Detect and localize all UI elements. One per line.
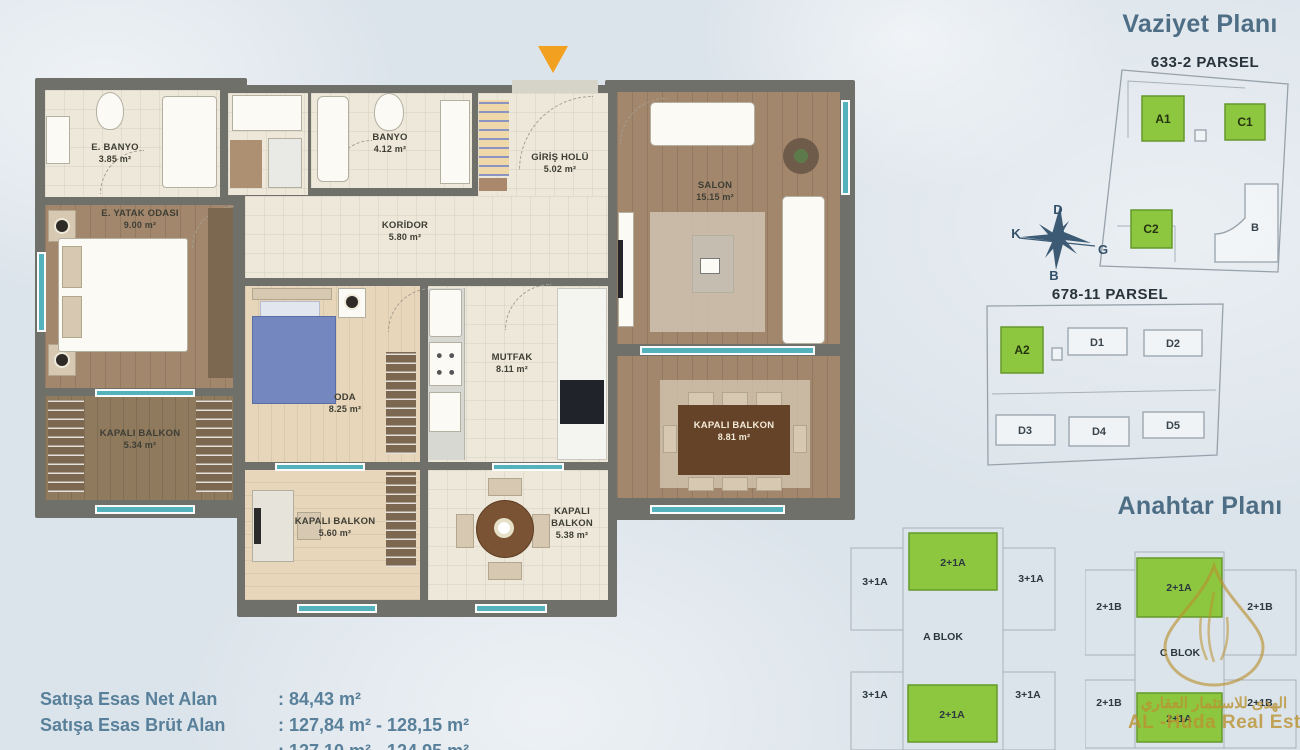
window-oda-balkon <box>275 463 365 471</box>
lamp-icon <box>56 220 68 232</box>
room-area: 3.85 m² <box>60 154 170 165</box>
parcel1-small-structure <box>1195 130 1206 141</box>
info-value: : 127,84 m² - 128,15 m² <box>278 715 469 736</box>
window-eyatak-balkon <box>95 389 195 397</box>
a-blok-wing <box>851 672 903 750</box>
room-label-balkon534: KAPALI BALKON 5.34 m² <box>75 428 205 451</box>
room-name: E. YATAK ODASI <box>101 208 178 219</box>
room-area: 5.60 m² <box>270 528 400 539</box>
oven-icon <box>560 380 604 424</box>
counter-icon <box>232 95 302 131</box>
room-name: SALON <box>698 180 732 191</box>
pillow-icon <box>62 246 82 288</box>
key-plan-a-blok: 2+1A 2+1A 3+1A 3+1A 3+1A 3+1A A BLOK <box>845 522 1060 750</box>
block-c1-label: C1 <box>1237 115 1253 129</box>
watermark-logo-icon <box>1139 562 1289 687</box>
room-area: 8.81 m² <box>680 432 788 443</box>
laptop-icon <box>700 258 720 274</box>
fridge-icon <box>429 289 462 337</box>
window-salon-balkon <box>640 346 815 355</box>
a-blok-unit-top-label: 2+1A <box>940 557 966 569</box>
room-label-banyo: BANYO 4.12 m² <box>335 132 445 155</box>
info-label: Satışa Esas Brüt Alan <box>40 715 278 736</box>
block-b-outline <box>1215 184 1278 262</box>
a-blok-label: A BLOK <box>923 631 963 643</box>
block-b-label: B <box>1251 222 1259 234</box>
room-name: KORİDOR <box>382 220 428 231</box>
chair-icon <box>488 562 522 580</box>
info-row: : 127,10 m² - 124,95 m² <box>40 738 469 750</box>
room-name: E. BANYO <box>91 142 139 153</box>
watermark-arabic-text: الهدى للاستثمار العقاري <box>1128 694 1300 712</box>
chair-icon <box>722 477 748 491</box>
a-blok-wing <box>1003 672 1055 750</box>
chair-icon <box>663 425 677 453</box>
plant-icon <box>783 138 819 174</box>
shower-icon <box>162 96 217 188</box>
parcel2-small-structure <box>1052 348 1062 360</box>
watermark-latin-text: AL -Huda Real Estate <box>1128 712 1300 734</box>
a-blok-corner-label: 3+1A <box>862 689 888 701</box>
chair-icon <box>793 425 807 453</box>
area-info: Satışa Esas Net Alan : 84,43 m² Satışa E… <box>40 686 469 750</box>
room-name: MUTFAK <box>492 352 533 363</box>
room-label-giris: GİRİŞ HOLÜ 5.02 m² <box>508 152 612 175</box>
info-value: : 127,10 m² - 124,95 m² <box>278 741 469 750</box>
site-plan-parcel2: A2 D1 D2 D3 D4 D5 <box>978 298 1230 470</box>
site-plan-title: Vaziyet Planı <box>1100 10 1300 39</box>
cabinet-icon <box>230 140 262 188</box>
window-balkon560-bottom <box>297 604 377 613</box>
compass-icon: D K G B <box>1003 198 1113 290</box>
room-area: 15.15 m² <box>660 192 770 203</box>
room-name: KAPALI BALKON <box>551 506 593 529</box>
c-blok-corner-label: 2+1B <box>1096 697 1122 709</box>
kitchen-sink-icon <box>429 392 461 432</box>
single-bed-icon <box>252 316 336 404</box>
shoe-cabinet-icon <box>479 178 507 191</box>
sofa-icon <box>650 102 755 146</box>
room-area: 4.12 m² <box>335 144 445 155</box>
room-label-salon: SALON 15.15 m² <box>660 180 770 203</box>
compass-n: D <box>1053 202 1062 217</box>
entrance-threshold <box>512 80 598 94</box>
window-balkon538-bottom <box>475 604 547 613</box>
toilet-icon <box>374 93 404 131</box>
c-blok-corner-label: 2+1B <box>1096 601 1122 613</box>
info-row: Satışa Esas Net Alan : 84,43 m² <box>40 686 469 712</box>
block-c2-label: C2 <box>1143 222 1159 236</box>
entrance-arrow-icon <box>538 46 568 73</box>
window-mutfak-balkon <box>492 463 564 471</box>
pillow-icon <box>62 296 82 338</box>
compass-w: K <box>1011 226 1021 241</box>
room-name: GİRİŞ HOLÜ <box>531 152 588 163</box>
room-area: 5.80 m² <box>350 232 460 243</box>
window-balkon534-bottom <box>95 505 195 514</box>
chair-icon <box>456 514 474 548</box>
info-row: Satışa Esas Brüt Alan : 127,84 m² - 128,… <box>40 712 469 738</box>
compass-s: B <box>1049 268 1058 283</box>
room-name: KAPALI BALKON <box>100 428 181 439</box>
room-area: 5.02 m² <box>508 164 612 175</box>
watermark: الهدى للاستثمار العقاري AL -Huda Real Es… <box>1128 562 1300 734</box>
a-blok-corner-label: 3+1A <box>1018 573 1044 585</box>
chair-icon <box>756 477 782 491</box>
headboard-icon <box>252 288 332 300</box>
window-balkon881-bottom <box>650 505 785 514</box>
key-plan-title: Anahtar Planı <box>1100 492 1300 521</box>
block-a2-label: A2 <box>1014 343 1030 357</box>
a-blok-unit-bottom-label: 2+1A <box>939 709 965 721</box>
room-label-balkon881: KAPALI BALKON 8.81 m² <box>680 420 788 443</box>
info-label: Satışa Esas Net Alan <box>40 689 278 710</box>
lamp-icon <box>346 296 358 308</box>
room-label-koridor: KORİDOR 5.80 m² <box>350 220 460 243</box>
window-salon-right <box>841 100 850 195</box>
room-area: 5.34 m² <box>75 440 205 451</box>
page: E. BANYO 3.85 m² E. YATAK ODASI 9.00 m² … <box>0 0 1300 750</box>
shoe-rack-icon <box>479 100 509 176</box>
block-d2-label: D2 <box>1166 338 1180 350</box>
washer-icon <box>268 138 302 188</box>
room-name: KAPALI BALKON <box>295 516 376 527</box>
a-blok-wing <box>1003 548 1055 630</box>
toilet-icon <box>96 92 124 130</box>
site-plan-parcel1: A1 C1 C2 B <box>1095 66 1300 281</box>
chair-icon <box>488 478 522 496</box>
chair-icon <box>688 477 714 491</box>
room-name: ODA <box>334 392 356 403</box>
lamp-icon <box>56 354 68 366</box>
room-name: KAPALI BALKON <box>694 420 775 431</box>
compass-e: G <box>1098 242 1108 257</box>
room-label-eyatak: E. YATAK ODASI 9.00 m² <box>75 208 205 231</box>
room-label-oda: ODA 8.25 m² <box>290 392 400 415</box>
room-name: BANYO <box>372 132 407 143</box>
block-a1-label: A1 <box>1155 112 1171 126</box>
chair-icon <box>688 392 714 406</box>
a-blok-corner-label: 3+1A <box>862 576 888 588</box>
block-d4-label: D4 <box>1092 426 1107 438</box>
flower-icon <box>494 518 514 538</box>
floor-plan: E. BANYO 3.85 m² E. YATAK ODASI 9.00 m² … <box>0 0 880 660</box>
block-d1-label: D1 <box>1090 337 1104 349</box>
block-d3-label: D3 <box>1018 425 1032 437</box>
tv-icon <box>618 240 623 298</box>
room-area: 9.00 m² <box>75 220 205 231</box>
chair-icon <box>722 392 748 406</box>
window-eyatak-left <box>37 252 46 332</box>
pillow-icon <box>260 301 320 317</box>
room-label-balkon538: KAPALI BALKON 5.38 m² <box>540 506 604 541</box>
room-area: 8.25 m² <box>290 404 400 415</box>
sofa-icon <box>782 196 825 344</box>
wardrobe-icon <box>208 208 233 378</box>
block-d5-label: D5 <box>1166 420 1180 432</box>
a-blok-corner-label: 3+1A <box>1015 689 1041 701</box>
room-label-ebanyo: E. BANYO 3.85 m² <box>60 142 170 165</box>
room-label-mutfak: MUTFAK 8.11 m² <box>457 352 567 375</box>
parcel2-inner-line <box>992 390 1216 394</box>
monitor-icon <box>254 508 261 544</box>
info-value: : 84,43 m² <box>278 689 361 710</box>
chair-icon <box>756 392 782 406</box>
a-blok-wing <box>851 548 903 630</box>
room-area: 5.38 m² <box>540 530 604 541</box>
room-area: 8.11 m² <box>457 364 567 375</box>
room-label-balkon560: KAPALI BALKON 5.60 m² <box>270 516 400 539</box>
